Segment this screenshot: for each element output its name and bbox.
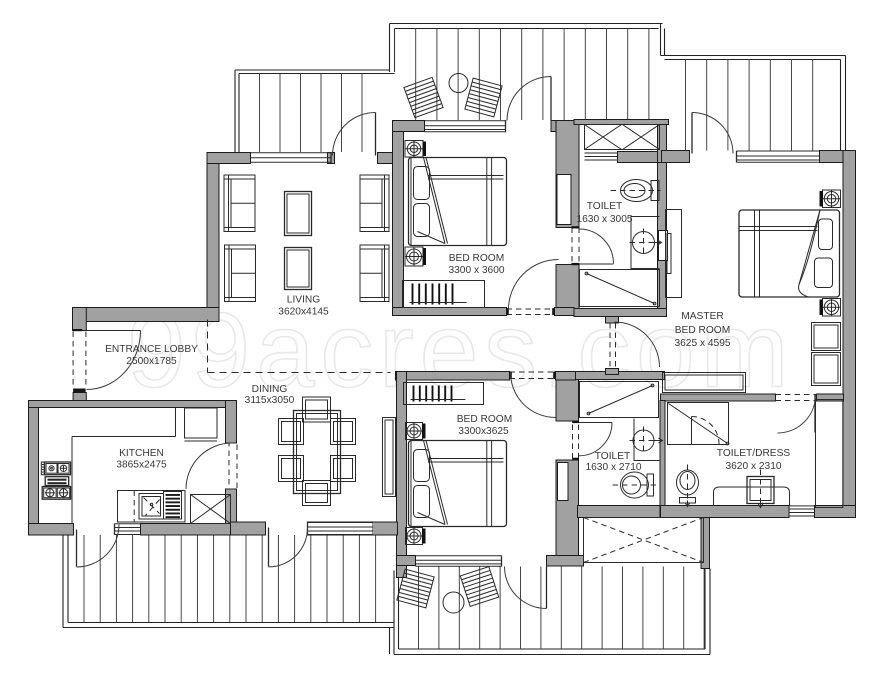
svg-text:3115x3050: 3115x3050 <box>245 395 295 406</box>
svg-text:LIVING: LIVING <box>287 295 320 306</box>
svg-text:3300x3625: 3300x3625 <box>458 426 509 437</box>
svg-text:BED ROOM: BED ROOM <box>457 414 512 425</box>
svg-text:DINING: DINING <box>252 384 288 395</box>
svg-text:2500x1785: 2500x1785 <box>126 356 177 367</box>
svg-text:3865x2475: 3865x2475 <box>116 460 167 471</box>
svg-text:TOILET/DRESS: TOILET/DRESS <box>717 448 791 459</box>
svg-text:MASTER: MASTER <box>681 311 723 322</box>
svg-text:3620 x 2310: 3620 x 2310 <box>725 461 781 472</box>
svg-text:TOILET: TOILET <box>595 451 630 462</box>
svg-text:BED ROOM: BED ROOM <box>675 325 730 336</box>
svg-text:TOILET: TOILET <box>587 201 622 212</box>
svg-text:1630 x 3005: 1630 x 3005 <box>576 214 632 225</box>
svg-text:BED ROOM: BED ROOM <box>449 253 504 264</box>
svg-text:3300 x 3600: 3300 x 3600 <box>448 265 504 276</box>
svg-text:3625 x 4595: 3625 x 4595 <box>674 338 730 349</box>
svg-text:KITCHEN: KITCHEN <box>119 448 164 459</box>
svg-text:1630 x 2710: 1630 x 2710 <box>585 462 641 473</box>
svg-text:3620x4145: 3620x4145 <box>278 307 329 318</box>
svg-text:ENTRANCE LOBBY: ENTRANCE LOBBY <box>105 344 198 355</box>
